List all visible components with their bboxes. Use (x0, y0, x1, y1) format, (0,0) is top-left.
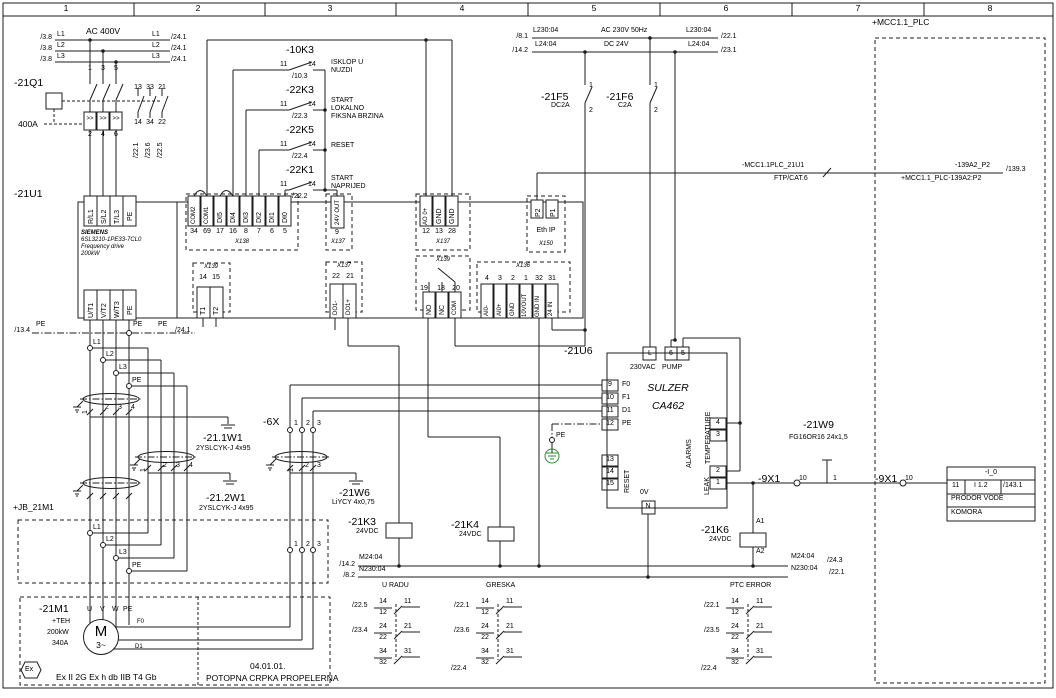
u6-n: N (645, 503, 650, 511)
f6-rating: C2A (618, 102, 632, 110)
u1-ao-gnd1: GND (436, 208, 444, 224)
u1-10vout: 10VOUT (522, 294, 529, 317)
u1-term-tl3: T/L3 (114, 210, 122, 224)
u1-nc: NC (439, 305, 447, 315)
function-name: POTOPNA CRPKA PROPELERNA (206, 674, 339, 684)
q1-aux13: 13 (134, 84, 142, 92)
schematic-drawing (0, 0, 1056, 698)
u1-term-rl1: R/L1 (88, 209, 96, 224)
ref-l3-src: /3.8 (40, 56, 52, 64)
jb-1: 1 (294, 541, 298, 549)
lad3-11: 11 (756, 598, 763, 606)
lad1-24: 24 (379, 623, 387, 631)
lad2-24: 24 (481, 623, 489, 631)
u1-di1: DI1 (269, 212, 277, 223)
lad1-31: 31 (404, 648, 412, 656)
k-22k1-11: 11 (280, 181, 287, 189)
u1-24in: 24 IN (548, 302, 555, 316)
cable2-core2: 2 (163, 462, 167, 470)
u1-x150: X150 (539, 241, 553, 248)
x9-pin10a: 10 (799, 475, 807, 483)
u1-di4: DI4 (230, 212, 238, 223)
k6-coil (740, 533, 766, 547)
k-22k3-desc: START LOKALNO FIKSNA BRZINA (331, 97, 384, 120)
k-22k3-14: 14 (308, 101, 316, 109)
lad2-ref1: /22.1 (454, 602, 470, 610)
u6-13: 13 (606, 456, 614, 464)
cable-211w1-type: 2YSLCYK-J 4x95 (196, 445, 250, 453)
u1-pin17: 17 (216, 228, 224, 236)
col-7: 7 (856, 4, 861, 14)
fn-greska: GRESKA (486, 582, 515, 590)
col-5: 5 (592, 4, 597, 14)
cable-21w6-tag: -21W6 (339, 488, 370, 500)
m24-label-r: M24:04 (791, 553, 814, 561)
u6-10: 10 (606, 394, 614, 402)
jb-l1: L1 (93, 524, 101, 532)
plc-cabinet-outline (875, 38, 1045, 683)
io-pin: 11 (952, 482, 959, 490)
col-3: 3 (328, 4, 333, 14)
tap-l2: L2 (106, 351, 114, 359)
ref-l24-src: /14.2 (512, 47, 528, 55)
u1-di5: DI5 (217, 212, 225, 223)
k4-coil-voltage: 24VDC (459, 531, 482, 539)
lad1-32: 32 (379, 659, 387, 667)
l2-left: L2 (57, 42, 65, 50)
u1-ethip: Eth IP (536, 227, 555, 235)
u1-pin22: 22 (332, 273, 340, 281)
cable1-core4: 4 (131, 404, 135, 412)
io-desc1: PRODOR VODE (951, 495, 1004, 503)
u6-f1: F1 (622, 394, 630, 402)
col-2: 2 (196, 4, 201, 14)
lad1-ref1: /22.5 (352, 602, 368, 610)
u1-gndin: GND IN (535, 296, 542, 317)
ref-l24-dst: /23.1 (721, 47, 737, 55)
ac230-title: AC 230V 50Hz (601, 27, 647, 35)
f6-2: 2 (654, 107, 658, 115)
lad3-ref2: /23.5 (704, 627, 720, 635)
u6-9: 9 (608, 381, 612, 389)
cable-212w1-type: 2YSLCYK-J 4x95 (199, 505, 253, 513)
motor-m: M (95, 624, 108, 641)
k6-a1: A1 (756, 518, 765, 526)
eth-cable-tag: -MCC1.1PLC_21U1 (742, 162, 804, 170)
k-22k3-tag: -22K3 (286, 85, 314, 97)
u1-pin13: 13 (435, 228, 443, 236)
u1-ao-gnd2: GND (449, 208, 457, 224)
motor-power: 200kW (47, 629, 69, 637)
u6-pe: PE (622, 420, 631, 428)
tap-l3: L3 (119, 364, 127, 372)
u1-term-pe-top: PE (127, 212, 135, 221)
u1-x137b: X137 (436, 239, 450, 246)
u6-t4: 4 (716, 419, 720, 427)
io-address: I 1.2 (974, 482, 988, 490)
f5-1: 1 (589, 82, 593, 90)
k-10k3-tag: -10K3 (286, 45, 314, 57)
motor-tag: -21M1 (39, 604, 69, 616)
io-desc2: KOMORA (951, 509, 982, 517)
u1-pin1: 1 (524, 275, 528, 283)
u1-pin34: 34 (190, 228, 198, 236)
l230-left: L230:04 (533, 27, 558, 35)
u6-leak: LEAK (704, 477, 712, 495)
k-22k5-14: 14 (308, 141, 316, 149)
k3-coil (386, 523, 412, 538)
ref-l230-dst: /22.1 (721, 33, 737, 41)
u1-ai0p: AI0+ (497, 303, 504, 316)
pe-rail-ref-r: /24.1 (175, 327, 191, 335)
q1-aux21: 21 (158, 84, 166, 92)
u1-term-sl2: S/L2 (101, 210, 109, 224)
pe-rail-1: PE (36, 321, 45, 329)
tap-pe: PE (132, 377, 141, 385)
schematic-page: 12345678/3.8/3.8/3.8L1L2L3AC 400VL1L2L3/… (0, 0, 1056, 698)
lad3-31: 31 (756, 648, 764, 656)
ref-l2-dst: /24.1 (171, 45, 187, 53)
u1-di3: DI3 (243, 212, 251, 223)
k6-a2: A2 (756, 548, 765, 556)
lad2-11: 11 (506, 598, 513, 606)
u1-com: COM (452, 301, 459, 315)
u1-pin28: 28 (448, 228, 456, 236)
f5-2: 2 (589, 107, 593, 115)
u1-x137a: X137 (331, 239, 345, 246)
k-10k3-11: 11 (280, 61, 287, 69)
eth-cable-type: FTP/CAT.6 (774, 175, 808, 183)
lad1-22: 22 (379, 634, 387, 642)
u6-temperature: TEMPERATURE (705, 412, 713, 464)
k-22k3-11: 11 (280, 101, 287, 109)
k-10k3-desc: ISKLOP U NUZDI (331, 59, 363, 75)
q1-trip2: >> (99, 116, 106, 123)
u1-pin2: 2 (511, 275, 515, 283)
u1-pin69: 69 (203, 228, 211, 236)
u1-pin21: 21 (346, 273, 354, 281)
u1-pin12: 12 (422, 228, 430, 236)
jb-l2: L2 (106, 536, 114, 544)
lad2-31: 31 (506, 648, 514, 656)
cable-211w1-tag: -21.1W1 (203, 433, 243, 445)
lad3-ref3: /22.4 (701, 665, 717, 673)
lad3-14: 14 (731, 598, 739, 606)
q1-p6: 6 (114, 131, 118, 139)
u1-term-wt3: W/T3 (114, 301, 122, 318)
lad3-21: 21 (756, 623, 764, 631)
u6-f0: F0 (622, 381, 630, 389)
k3-coil-voltage: 24VDC (356, 528, 379, 536)
n230-label-r: N230:04 (791, 565, 817, 573)
cable1-core3: 3 (118, 404, 122, 412)
u1-com1: COM1 (204, 207, 211, 224)
l3-left: L3 (57, 53, 65, 61)
u6-14: 14 (606, 468, 614, 476)
u1-term-ut1: U/T1 (88, 303, 96, 318)
lad2-22: 22 (481, 634, 489, 642)
q1-p5: 5 (114, 65, 118, 73)
u1-pin4: 4 (485, 275, 489, 283)
io-title: -I_0 (985, 469, 997, 477)
u1-x137c: X137 (337, 263, 351, 270)
ref-l2-src: /3.8 (40, 45, 52, 53)
u1-pin7: 7 (257, 228, 261, 236)
jb-3: 3 (317, 541, 321, 549)
io-ref: /143.1 (1003, 482, 1022, 490)
q1-aux14: 14 (134, 119, 142, 127)
motor-u: U (87, 606, 92, 614)
k3-tag: -21K3 (348, 517, 376, 529)
f6-1: 1 (654, 82, 658, 90)
lad3-32: 32 (731, 659, 739, 667)
pe-rail-3: PE (158, 321, 167, 329)
u6-0v: 0V (640, 489, 649, 497)
k-22k1-tag: -22K1 (286, 165, 314, 177)
u6-230vac: 230VAC (630, 364, 656, 372)
q1-rating: 400A (18, 120, 38, 130)
w6-core1: 1 (288, 468, 296, 472)
n230-ref-r: /22.1 (829, 569, 845, 577)
k-22k5-11: 11 (280, 141, 287, 149)
cable-21w6-type: LiYCY 4x0,75 (332, 499, 375, 507)
m24-ref-l: /14.2 (339, 561, 355, 569)
lad3-24: 24 (731, 623, 739, 631)
u6-alarms: ALARMS (686, 439, 694, 468)
motor-w: W (112, 606, 119, 614)
cable-212w1-tag: -21.2W1 (206, 493, 246, 505)
u1-pin14: 14 (199, 274, 207, 282)
k4-tag: -21K4 (451, 520, 479, 532)
u1-x139b: X139 (436, 257, 450, 264)
motor-pe: PE (123, 606, 132, 614)
u1-do1p: DO1+ (346, 299, 353, 315)
q1-trip3: >> (112, 116, 119, 123)
u6-t2: 2 (716, 467, 720, 475)
k-10k3-ref: /10.3 (292, 73, 308, 81)
ex-icon-text: Ex (25, 666, 33, 674)
q1-aux34: 34 (146, 119, 154, 127)
jb-2: 2 (306, 541, 310, 549)
cable1-core1: 1 (82, 410, 90, 414)
x6-2: 2 (306, 420, 310, 428)
u1-pin8: 8 (244, 228, 248, 236)
x6-1: 1 (294, 420, 298, 428)
u1-type: Frequency drive (81, 244, 124, 251)
col-8: 8 (988, 4, 993, 14)
fn-ptc-error: PTC ERROR (730, 582, 771, 590)
n230-ref-l: /8.2 (343, 572, 355, 580)
supply-title: AC 400V (86, 27, 120, 37)
u6-t3: 3 (716, 431, 720, 439)
l24-right: L24:04 (688, 41, 709, 49)
k-22k5-desc: RESET (331, 142, 354, 150)
ref-l230-src: /8.1 (516, 33, 528, 41)
k-22k3-ref: /22.3 (292, 113, 308, 121)
lad2-21: 21 (506, 623, 514, 631)
u1-ai0m: AI0- (484, 305, 491, 316)
u1-com2: COM2 (191, 207, 198, 224)
m24-ref-r: /24.3 (827, 557, 843, 565)
lad1-14: 14 (379, 598, 387, 606)
u1-pin9: 9 (335, 229, 339, 237)
u6-reset: RESET (624, 470, 632, 493)
col-4: 4 (460, 4, 465, 14)
u6-t1: 1 (716, 479, 720, 487)
lad1-34: 34 (379, 648, 387, 656)
w6-core3: 3 (317, 462, 321, 470)
u1-pin5: 5 (283, 228, 287, 236)
u1-x136: X136 (516, 263, 530, 270)
u6-term-5: 5 (681, 350, 685, 358)
u1-di0: DI0 (282, 212, 290, 223)
m24-label-l: M24:04 (359, 554, 382, 562)
k-22k5-ref: /22.4 (292, 153, 308, 161)
lad3-ref1: /22.1 (704, 602, 720, 610)
u1-term-pe-bot: PE (127, 306, 135, 315)
ref-l3-dst: /24.1 (171, 56, 187, 64)
x9-tag-2: -9X1 (875, 474, 897, 486)
l24-left: L24:04 (535, 41, 556, 49)
cable2-core4: 4 (189, 462, 193, 470)
eth-dst-ref: /139.3 (1006, 166, 1025, 174)
u1-gnd3: GND (510, 303, 517, 316)
lad2-ref3: /22.4 (451, 665, 467, 673)
k6-coil-voltage: 24VDC (709, 536, 732, 544)
lad3-22: 22 (731, 634, 739, 642)
u6-term-6: 6 (669, 350, 673, 358)
wires-solid (55, 38, 1035, 658)
q1-p1: 1 (88, 65, 92, 73)
lad1-11: 11 (404, 598, 411, 606)
u6-pe-earth: PE (556, 432, 565, 440)
f5-rating: DC2A (551, 102, 570, 110)
u6-model: CA462 (652, 401, 684, 413)
x6-tag: -6X (263, 417, 279, 429)
q1-auxref1: /22.1 (133, 142, 141, 158)
q1-trip1: >> (86, 116, 93, 123)
u1-ao0: AO 0+ (423, 208, 430, 225)
u6-pump: PUMP (662, 364, 682, 372)
l2-right: L2 (152, 42, 160, 50)
u1-pin15: 15 (212, 274, 220, 282)
q1-p2: 2 (88, 131, 92, 139)
w9-tag: -21W9 (803, 420, 834, 432)
u1-pin16: 16 (229, 228, 237, 236)
k6-tag: -21K6 (701, 525, 729, 537)
w9-type: FG16OR16 24x1,5 (789, 434, 848, 442)
u1-p2: P2 (535, 208, 543, 217)
motor-d1: D1 (135, 644, 143, 651)
u6-tag: -21U6 (564, 346, 593, 358)
u1-x139a: X139 (204, 264, 218, 271)
u1-pin20: 20 (452, 285, 460, 293)
wires-dashed (18, 38, 1045, 685)
motor-current: 340A (52, 640, 68, 648)
u1-x138: X138 (235, 239, 249, 246)
u1-pin3: 3 (498, 275, 502, 283)
l1-left: L1 (57, 31, 65, 39)
jb-tag: +JB_21M1 (13, 503, 54, 513)
u6-11: 11 (606, 407, 613, 415)
lad1-21: 21 (404, 623, 412, 631)
k-22k1-desc: START NAPRIJED (331, 175, 366, 191)
k-22k1-14: 14 (308, 181, 316, 189)
u1-t2: T2 (213, 307, 221, 315)
lad3-12: 12 (731, 609, 739, 617)
u6-12: 12 (606, 420, 614, 428)
u1-di2: DI2 (256, 212, 264, 223)
jb-pe: PE (132, 562, 141, 570)
q1-operator-icon (46, 93, 62, 109)
u1-24vout: 24V OUT (335, 200, 342, 225)
q1-aux33: 33 (146, 84, 154, 92)
q1-p3: 3 (101, 65, 105, 73)
motor-f0: F0 (137, 619, 144, 626)
lad2-ref2: /23.6 (454, 627, 470, 635)
u6-15: 15 (606, 480, 614, 488)
x9-tag-1: -9X1 (758, 474, 780, 486)
lad2-14: 14 (481, 598, 489, 606)
col-1: 1 (64, 4, 69, 14)
pe-rail-2: PE (133, 321, 142, 329)
u1-p1: P1 (550, 208, 558, 217)
u6-term-l: L (648, 350, 652, 358)
u1-model: 6SL3210-1PE33-7CL0 (81, 237, 141, 244)
plc-box-tag: +MCC1.1_PLC (872, 18, 929, 28)
ref-l1-dst: /24.1 (171, 34, 187, 42)
motor-v: V (100, 606, 105, 614)
q1-tag: -21Q1 (14, 78, 43, 90)
u6-brand: SULZER (647, 383, 688, 395)
lad3-34: 34 (731, 648, 739, 656)
u1-pin19: 19 (420, 285, 428, 293)
u1-pin32: 32 (535, 275, 543, 283)
l3-right: L3 (152, 53, 160, 61)
u1-tag: -21U1 (14, 189, 43, 201)
function-number: 04.01.01. (250, 662, 285, 672)
lad1-12: 12 (379, 609, 387, 617)
u1-term-vt2: V/T2 (101, 303, 109, 318)
q1-auxref3: /22.5 (157, 142, 165, 158)
k-22k1-ref: /22.2 (292, 193, 308, 201)
junction-box-outline (18, 520, 328, 583)
u1-power: 200kW (81, 251, 100, 258)
k-10k3-14: 14 (308, 61, 316, 69)
tap-l1: L1 (93, 339, 101, 347)
x9-pin10b: 10 (905, 475, 913, 483)
u1-pin18: 18 (437, 285, 445, 293)
motor-3ph: 3~ (96, 641, 106, 651)
pe-rail-ref-l: /13.4 (14, 327, 30, 335)
u6-d1: D1 (622, 407, 631, 415)
eth-dst-tag: -139A2_P2 (955, 162, 990, 170)
u1-pin31: 31 (548, 275, 556, 283)
eth-dst-path: +MCC1.1_PLC-139A2:P2 (901, 175, 981, 183)
u1-t1: T1 (200, 307, 208, 315)
n230-label-l: N230:04 (359, 566, 385, 574)
jb-l3: L3 (119, 549, 127, 557)
w6-core2: 2 (305, 462, 309, 470)
motor-teh: +TEH (52, 618, 70, 626)
cable2-core1: 1 (140, 468, 148, 472)
q1-p4: 4 (101, 131, 105, 139)
lad2-34: 34 (481, 648, 489, 656)
k4-coil (488, 527, 514, 541)
ex-rating: Ex II 2G Ex h db IIB T4 Gb (56, 673, 156, 683)
l230-right: L230:04 (686, 27, 711, 35)
u1-pin6: 6 (270, 228, 274, 236)
